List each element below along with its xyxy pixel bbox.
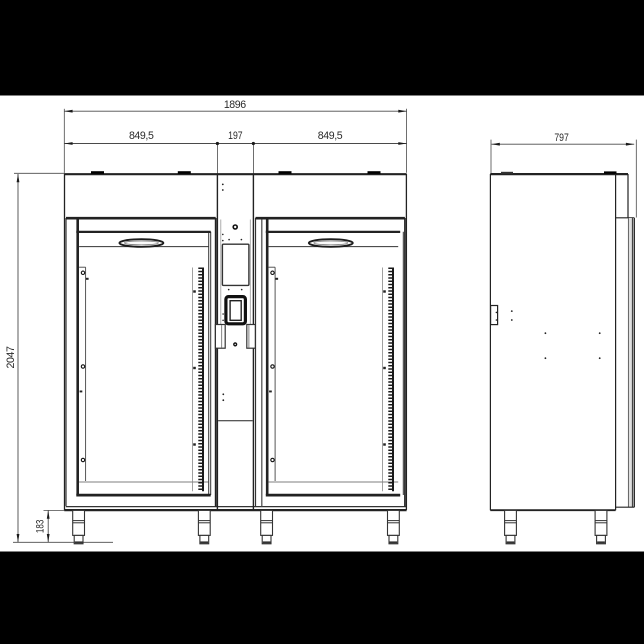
svg-text:1896: 1896 (224, 99, 246, 111)
svg-text:797: 797 (554, 132, 569, 144)
svg-text:197: 197 (228, 130, 243, 142)
svg-text:849,5: 849,5 (318, 130, 343, 142)
svg-text:2047: 2047 (5, 346, 17, 368)
svg-text:183: 183 (35, 520, 47, 534)
svg-text:849,5: 849,5 (129, 130, 154, 142)
